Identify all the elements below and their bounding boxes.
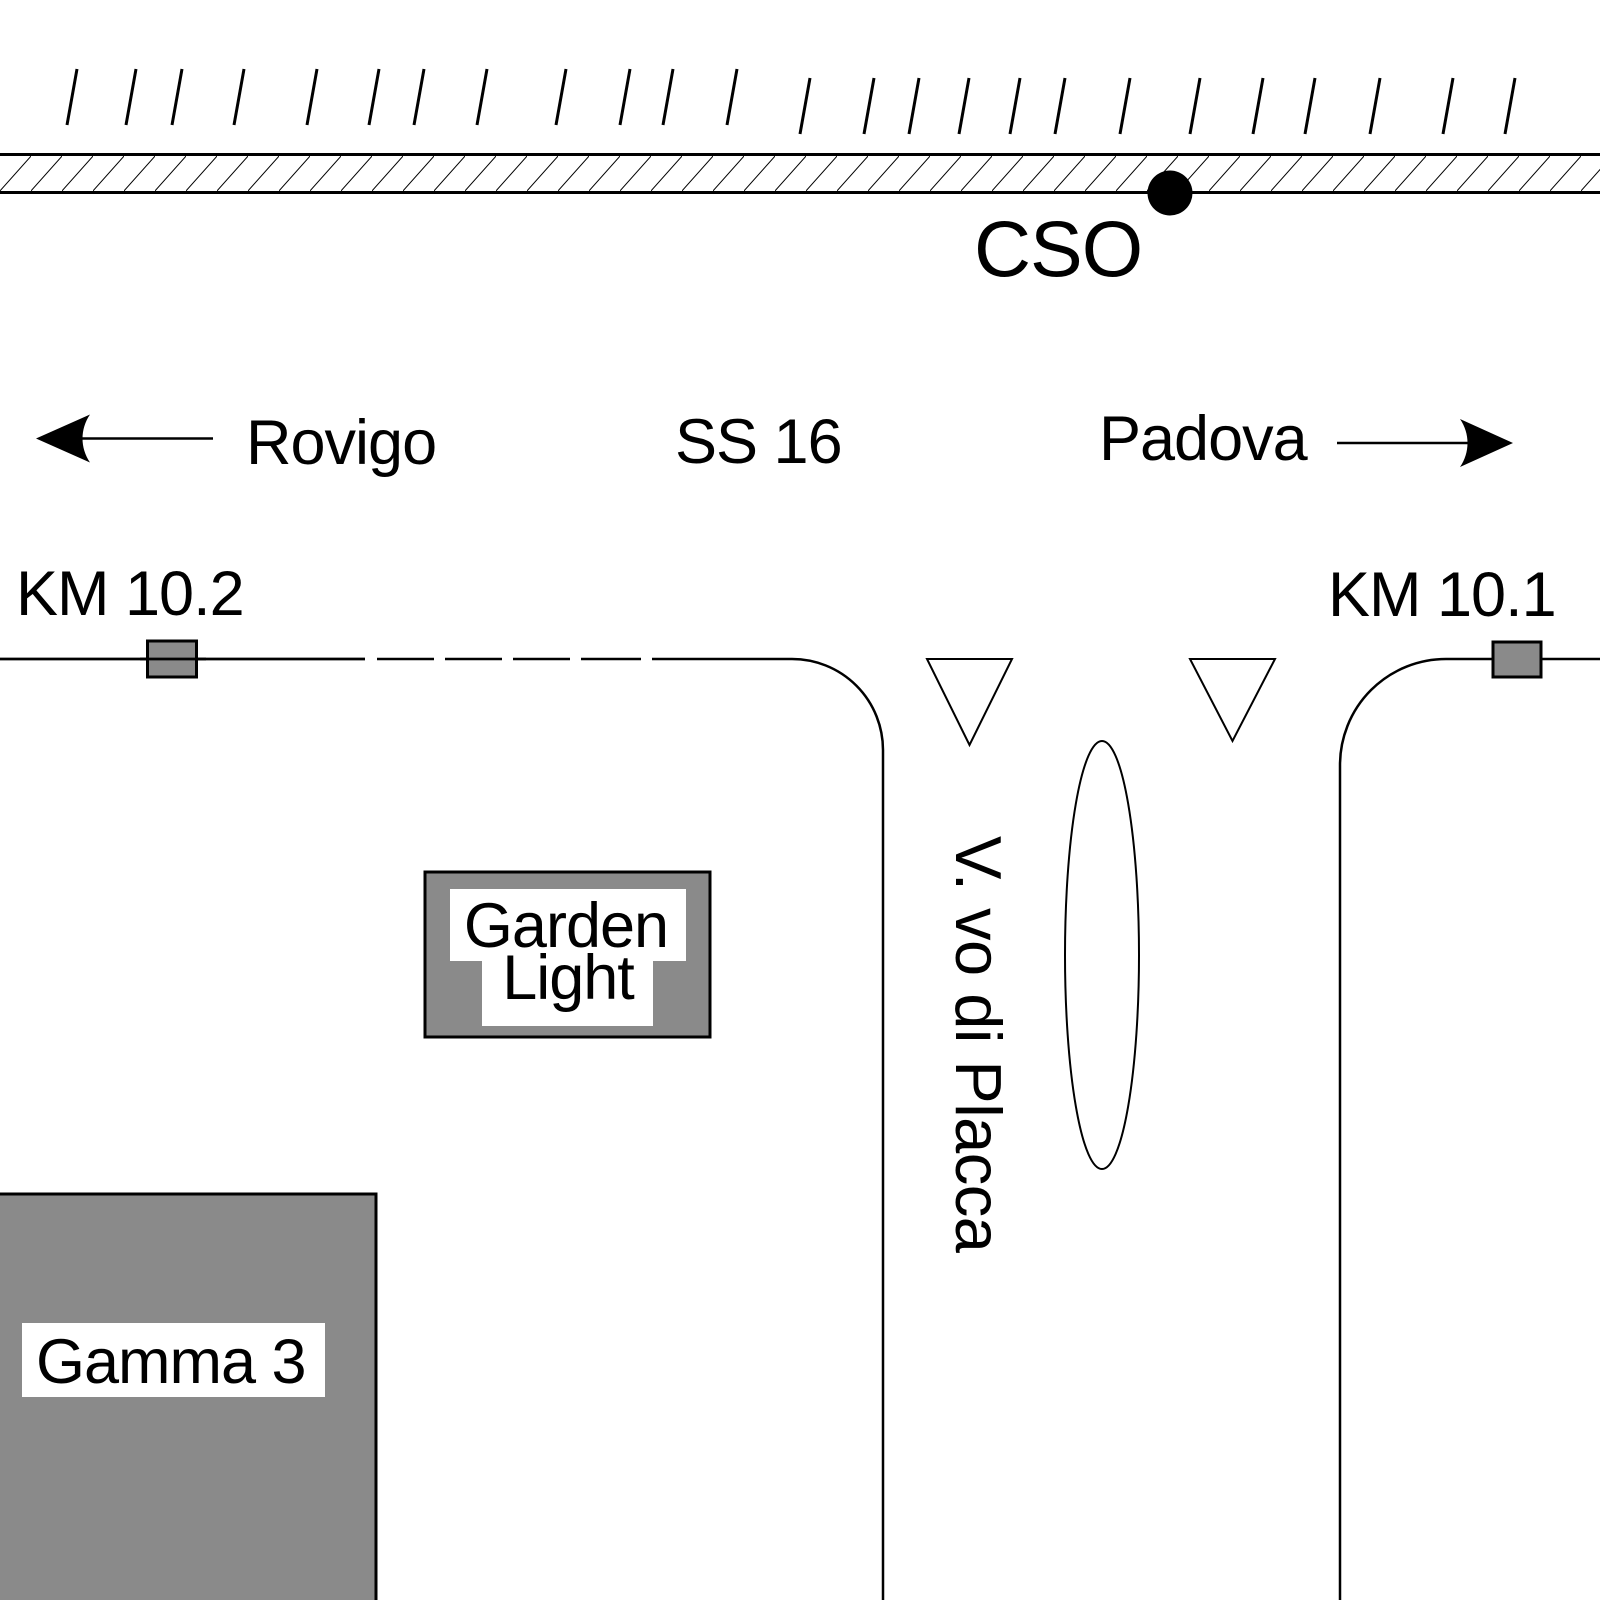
- svg-text:KM 10.1: KM 10.1: [1328, 560, 1556, 630]
- svg-text:Gamma 3: Gamma 3: [36, 1327, 306, 1397]
- svg-text:Padova: Padova: [1099, 404, 1309, 474]
- svg-text:KM 10.2: KM 10.2: [16, 559, 244, 629]
- svg-text:Rovigo: Rovigo: [246, 408, 436, 478]
- svg-text:V. vo di Placca: V. vo di Placca: [942, 836, 1015, 1254]
- svg-text:SS 16: SS 16: [675, 407, 842, 477]
- svg-text:CSO: CSO: [974, 204, 1142, 293]
- svg-text:Light: Light: [502, 943, 635, 1013]
